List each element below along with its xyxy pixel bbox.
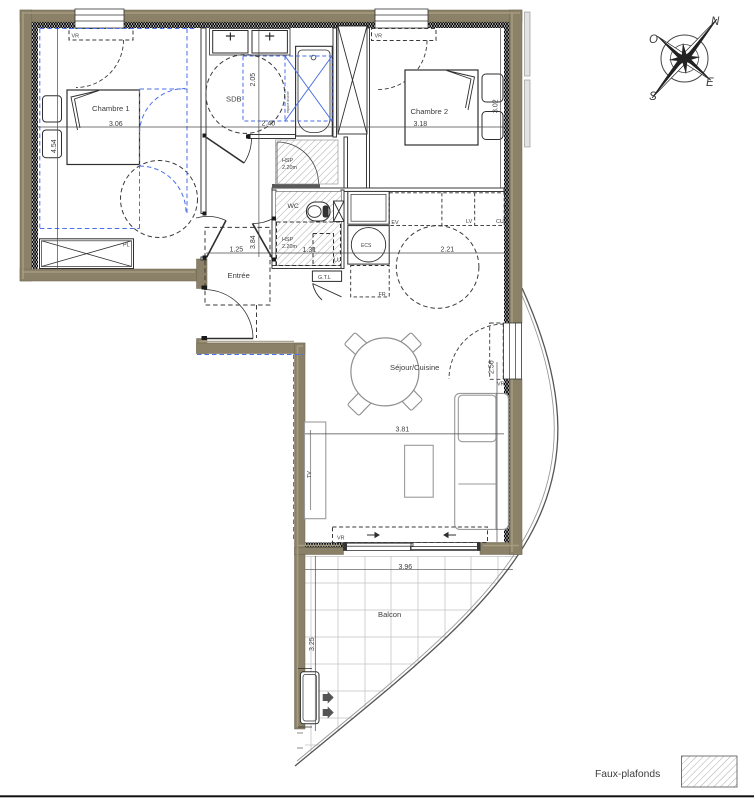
svg-text:2.56: 2.56 [489,360,496,374]
svg-text:3.84: 3.84 [250,235,257,249]
svg-text:PL: PL [123,243,130,249]
svg-text:VR: VR [337,536,345,542]
svg-text:O: O [649,34,658,46]
svg-text:VR: VR [375,34,383,40]
svg-text:Balcon: Balcon [378,610,401,619]
svg-text:4.54: 4.54 [51,139,58,153]
svg-text:VR: VR [72,34,80,40]
svg-text:WC: WC [288,203,299,210]
svg-text:2.21: 2.21 [441,247,455,254]
svg-text:G.T.L: G.T.L [318,275,331,281]
svg-text:CU: CU [496,219,504,225]
svg-text:Faux-plafonds: Faux-plafonds [595,769,660,780]
svg-text:2.05: 2.05 [250,73,257,87]
svg-text:3.81: 3.81 [396,427,410,434]
svg-text:1.25: 1.25 [230,247,244,254]
svg-text:LU: LU [334,258,341,264]
svg-text:VR: VR [497,382,505,388]
svg-text:LV: LV [466,219,473,225]
svg-text:HSP: HSP [282,158,293,164]
svg-text:2.20m: 2.20m [282,165,297,171]
svg-text:EV: EV [391,220,399,226]
svg-text:S: S [649,91,657,103]
svg-text:TV: TV [307,471,313,478]
svg-text:3.02: 3.02 [493,99,500,113]
svg-text:2.40: 2.40 [262,121,276,128]
svg-text:3.96: 3.96 [399,564,413,571]
svg-text:ECS: ECS [361,243,372,249]
svg-text:N: N [711,16,720,28]
svg-text:FR: FR [379,292,386,298]
svg-text:2.20m: 2.20m [282,244,297,250]
svg-text:3.18: 3.18 [414,121,428,128]
svg-text:SDB: SDB [226,95,242,104]
svg-text:espace douche: espace douche [286,91,290,113]
svg-text:3.25: 3.25 [309,637,316,651]
svg-text:Séjour/Cuisine: Séjour/Cuisine [390,363,439,372]
svg-text:3.06: 3.06 [109,121,123,128]
svg-text:Entrée: Entrée [228,271,250,280]
svg-text:Chambre 1: Chambre 1 [92,104,130,113]
svg-text:1.31: 1.31 [303,247,317,254]
svg-text:HSP: HSP [282,237,293,243]
svg-text:Chambre 2: Chambre 2 [411,107,449,116]
svg-text:E: E [706,77,714,89]
